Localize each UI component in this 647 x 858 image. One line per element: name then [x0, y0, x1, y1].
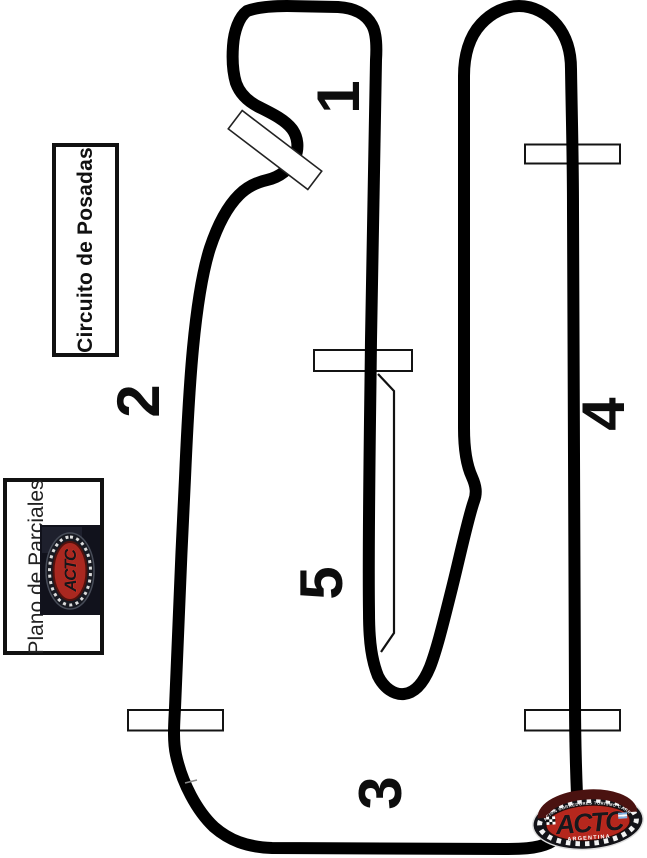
sector-marker-middle — [314, 350, 412, 371]
small-logo-oval: ACTC — [46, 533, 94, 609]
sector-label-1: 1 — [299, 57, 379, 137]
sector-label-5: 5 — [282, 543, 362, 623]
checkered-flag-icon — [546, 816, 556, 825]
sector-label-3: 3 — [341, 753, 421, 833]
actc-logo-small: ACTC — [40, 525, 100, 615]
sector-label-4: 4 — [564, 374, 644, 454]
circuit-title-box: Circuito de Posadas — [52, 143, 119, 357]
small-logo-acronym: ACTC — [61, 548, 80, 592]
plan-title-box: Plano de Parciales ACTC — [3, 478, 104, 655]
sector-label-2: 2 — [99, 361, 179, 441]
circuit-title: Circuito de Posadas — [74, 147, 98, 353]
circuit-map-page: ASOCIACION CORREDORES TURISMO CARRETERA … — [0, 0, 647, 858]
pit-lane-line — [378, 374, 394, 652]
argentina-flag-icon — [618, 812, 627, 819]
